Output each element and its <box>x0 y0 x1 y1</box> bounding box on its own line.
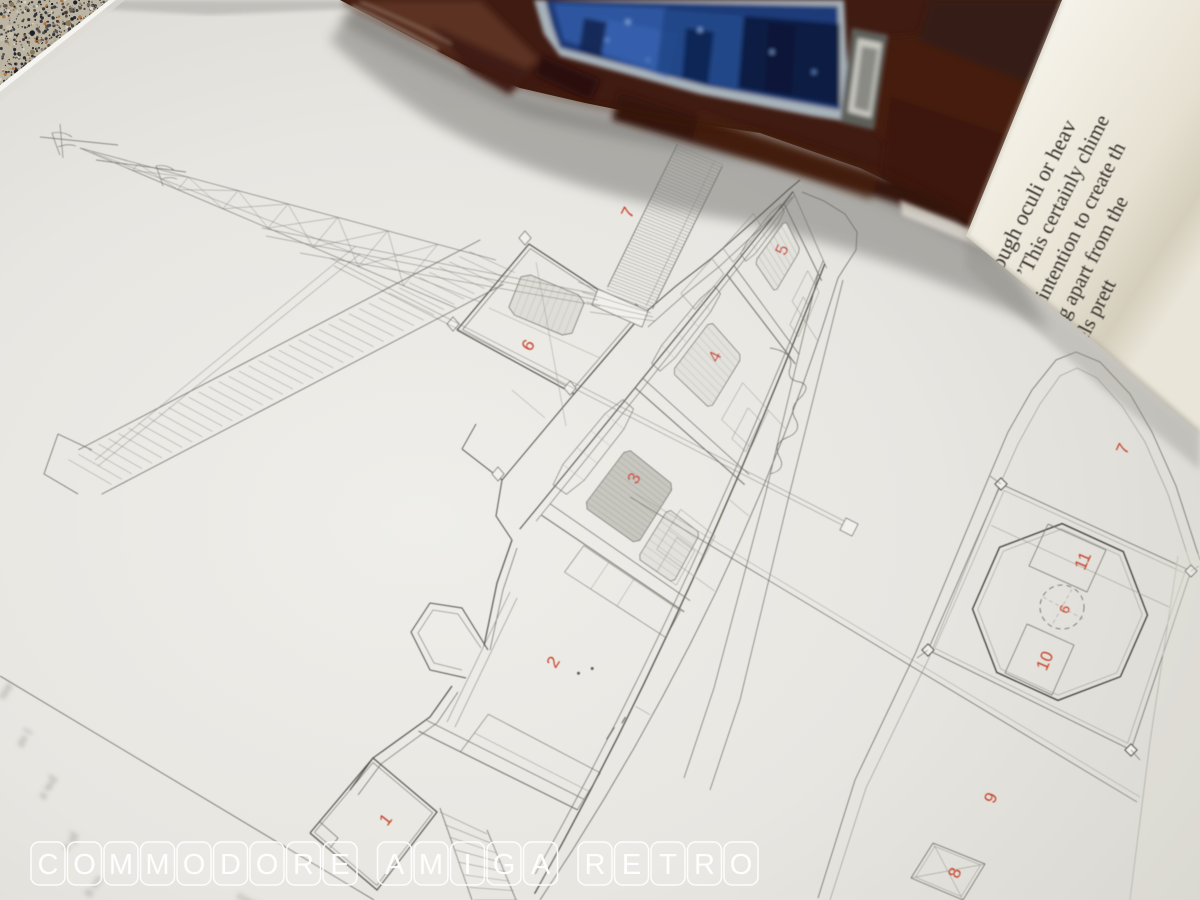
svg-text:I: I <box>463 849 471 881</box>
svg-text:R: R <box>585 849 606 881</box>
svg-text:M: M <box>145 849 169 881</box>
svg-text:A: A <box>531 849 551 881</box>
svg-text:E: E <box>622 849 641 881</box>
svg-text:G: G <box>493 849 516 881</box>
svg-text:M: M <box>109 849 133 881</box>
svg-text:T: T <box>659 849 677 881</box>
svg-text:E: E <box>330 849 349 881</box>
svg-text:D: D <box>220 849 241 881</box>
svg-text:O: O <box>183 849 206 881</box>
svg-text:C: C <box>38 849 59 881</box>
svg-text:O: O <box>730 849 753 881</box>
svg-text:R: R <box>293 849 314 881</box>
svg-text:M: M <box>419 849 443 881</box>
svg-text:O: O <box>256 849 279 881</box>
svg-text:R: R <box>694 849 715 881</box>
svg-text:A: A <box>385 849 405 881</box>
svg-text:O: O <box>73 849 96 881</box>
